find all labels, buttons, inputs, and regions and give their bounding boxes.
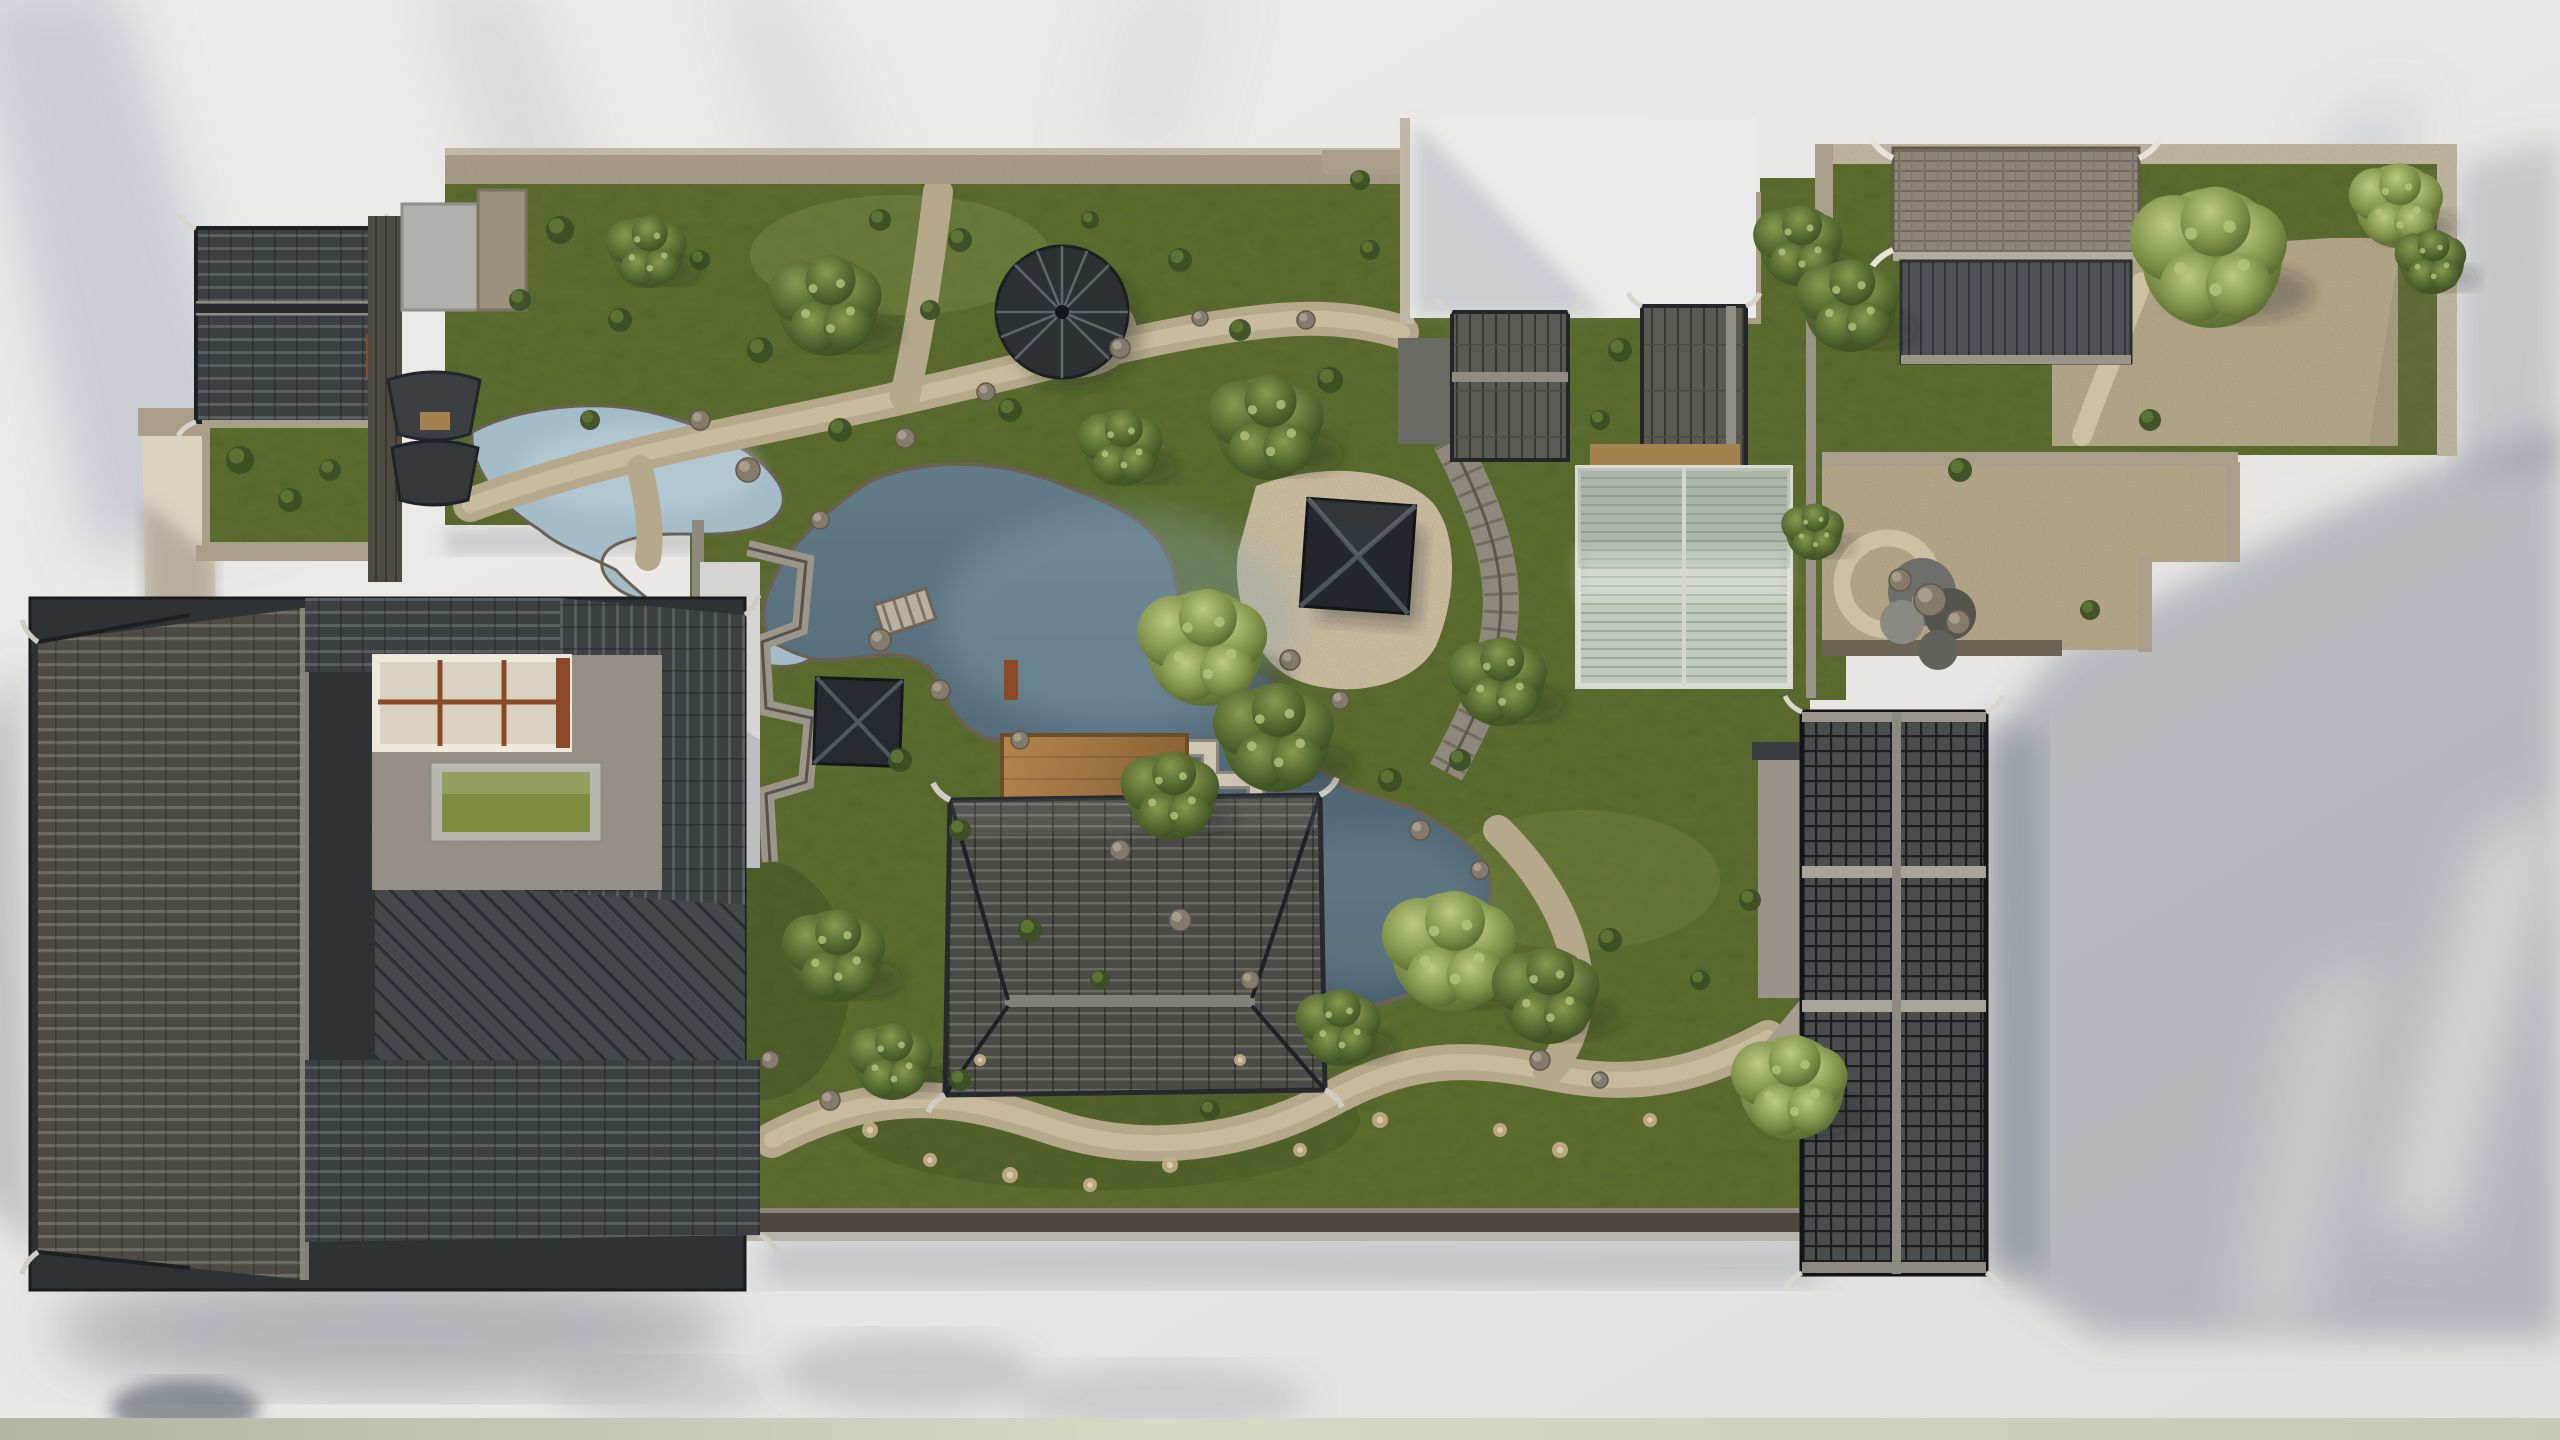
shrub bbox=[998, 398, 1022, 422]
shrub bbox=[1018, 918, 1042, 942]
rock bbox=[1169, 909, 1191, 931]
square-pavilion-knoll bbox=[1300, 498, 1426, 626]
flower-shrub bbox=[923, 1153, 937, 1167]
shrub bbox=[949, 819, 971, 841]
shrub bbox=[869, 209, 891, 231]
flower-shrub bbox=[974, 1054, 986, 1066]
flower-shrub bbox=[1293, 1143, 1307, 1157]
compound-west-roof bbox=[38, 608, 305, 1280]
rock bbox=[1914, 584, 1946, 616]
square-pavilion-west bbox=[814, 678, 903, 767]
northeast-hall-lower-roof bbox=[1901, 261, 2131, 363]
courtyard-compound bbox=[22, 595, 778, 1290]
shrub bbox=[1229, 319, 1251, 341]
shrub bbox=[828, 418, 852, 442]
greenhouse-end-wall bbox=[1590, 444, 1740, 468]
white-courtyard bbox=[1410, 118, 1756, 318]
table-edge-strip bbox=[0, 1418, 2560, 1440]
shrub bbox=[1350, 170, 1370, 190]
flower-shrub bbox=[1643, 1113, 1657, 1127]
rock bbox=[1241, 971, 1259, 989]
rock bbox=[1110, 338, 1130, 358]
red-wall-accent bbox=[1004, 660, 1018, 700]
shrub bbox=[920, 300, 940, 320]
rock bbox=[690, 410, 710, 430]
shrub bbox=[1168, 248, 1192, 272]
rock bbox=[820, 1090, 840, 1110]
rock bbox=[1110, 840, 1130, 860]
rock bbox=[811, 511, 829, 529]
shrub bbox=[747, 337, 773, 363]
shrub bbox=[319, 459, 341, 481]
rock bbox=[736, 458, 760, 482]
east-annex bbox=[1758, 752, 1804, 998]
shrub bbox=[888, 748, 912, 772]
rock bbox=[1889, 569, 1911, 591]
shrub bbox=[1317, 367, 1343, 393]
shrub bbox=[278, 488, 302, 512]
rock bbox=[930, 680, 950, 700]
rock bbox=[761, 1051, 779, 1069]
shrub bbox=[1739, 889, 1761, 911]
flower-shrub bbox=[1002, 1167, 1018, 1183]
rock bbox=[1592, 1072, 1608, 1088]
rock bbox=[1331, 691, 1349, 709]
shrub bbox=[2139, 409, 2161, 431]
flower-shrub bbox=[1162, 1157, 1178, 1173]
rock bbox=[1410, 820, 1430, 840]
rock bbox=[895, 428, 915, 448]
gallery-annex bbox=[1398, 338, 1452, 444]
shrub bbox=[1360, 240, 1380, 260]
flower-shrub bbox=[862, 1122, 878, 1138]
compound-inner-south-roof bbox=[375, 880, 745, 1060]
shrub bbox=[949, 1069, 971, 1091]
shrub bbox=[948, 228, 972, 252]
shrub bbox=[608, 308, 632, 332]
shrub bbox=[1948, 458, 1972, 482]
rock bbox=[1192, 310, 1208, 326]
skylight-window bbox=[376, 658, 570, 748]
flower-shrub bbox=[1493, 1123, 1507, 1137]
rock bbox=[1011, 731, 1029, 749]
shrub bbox=[2080, 600, 2100, 620]
shrub bbox=[1598, 928, 1622, 952]
northeast-compound-shadow bbox=[2457, 138, 2560, 470]
northeast-hall-upper-roof bbox=[1893, 148, 2139, 258]
rock bbox=[1297, 311, 1315, 329]
house-shrub-yard bbox=[206, 424, 374, 546]
shrub bbox=[1378, 768, 1402, 792]
shrub bbox=[580, 410, 600, 430]
flower-shrub bbox=[1372, 1112, 1388, 1128]
flower-shrub bbox=[1083, 1178, 1097, 1192]
garden-model-scene bbox=[0, 0, 2560, 1440]
flat-roof-shed bbox=[402, 204, 480, 310]
shrub bbox=[1449, 749, 1471, 771]
shrub bbox=[509, 289, 531, 311]
green-table bbox=[430, 762, 602, 842]
shrub bbox=[226, 446, 254, 474]
rock bbox=[869, 629, 891, 651]
northwest-house-roof bbox=[196, 228, 370, 422]
shrub bbox=[1081, 211, 1099, 229]
flower-shrub bbox=[1234, 1054, 1246, 1066]
rock bbox=[1946, 610, 1970, 634]
main-hall bbox=[928, 778, 1342, 1112]
shrub bbox=[1590, 410, 1610, 430]
shrub bbox=[1608, 338, 1632, 362]
rock bbox=[1530, 1050, 1550, 1070]
shrub bbox=[1090, 970, 1110, 990]
rock bbox=[1471, 861, 1489, 879]
gallery-building-west bbox=[1438, 299, 1582, 460]
greenhouse bbox=[1578, 444, 1790, 686]
rock bbox=[977, 383, 995, 401]
shrub bbox=[1200, 1100, 1220, 1120]
shrub bbox=[1690, 970, 1710, 990]
model-photo bbox=[0, 0, 2560, 1440]
compound-south-roof bbox=[305, 1060, 760, 1242]
flower-shrub bbox=[1552, 1142, 1568, 1158]
shrub bbox=[546, 216, 574, 244]
